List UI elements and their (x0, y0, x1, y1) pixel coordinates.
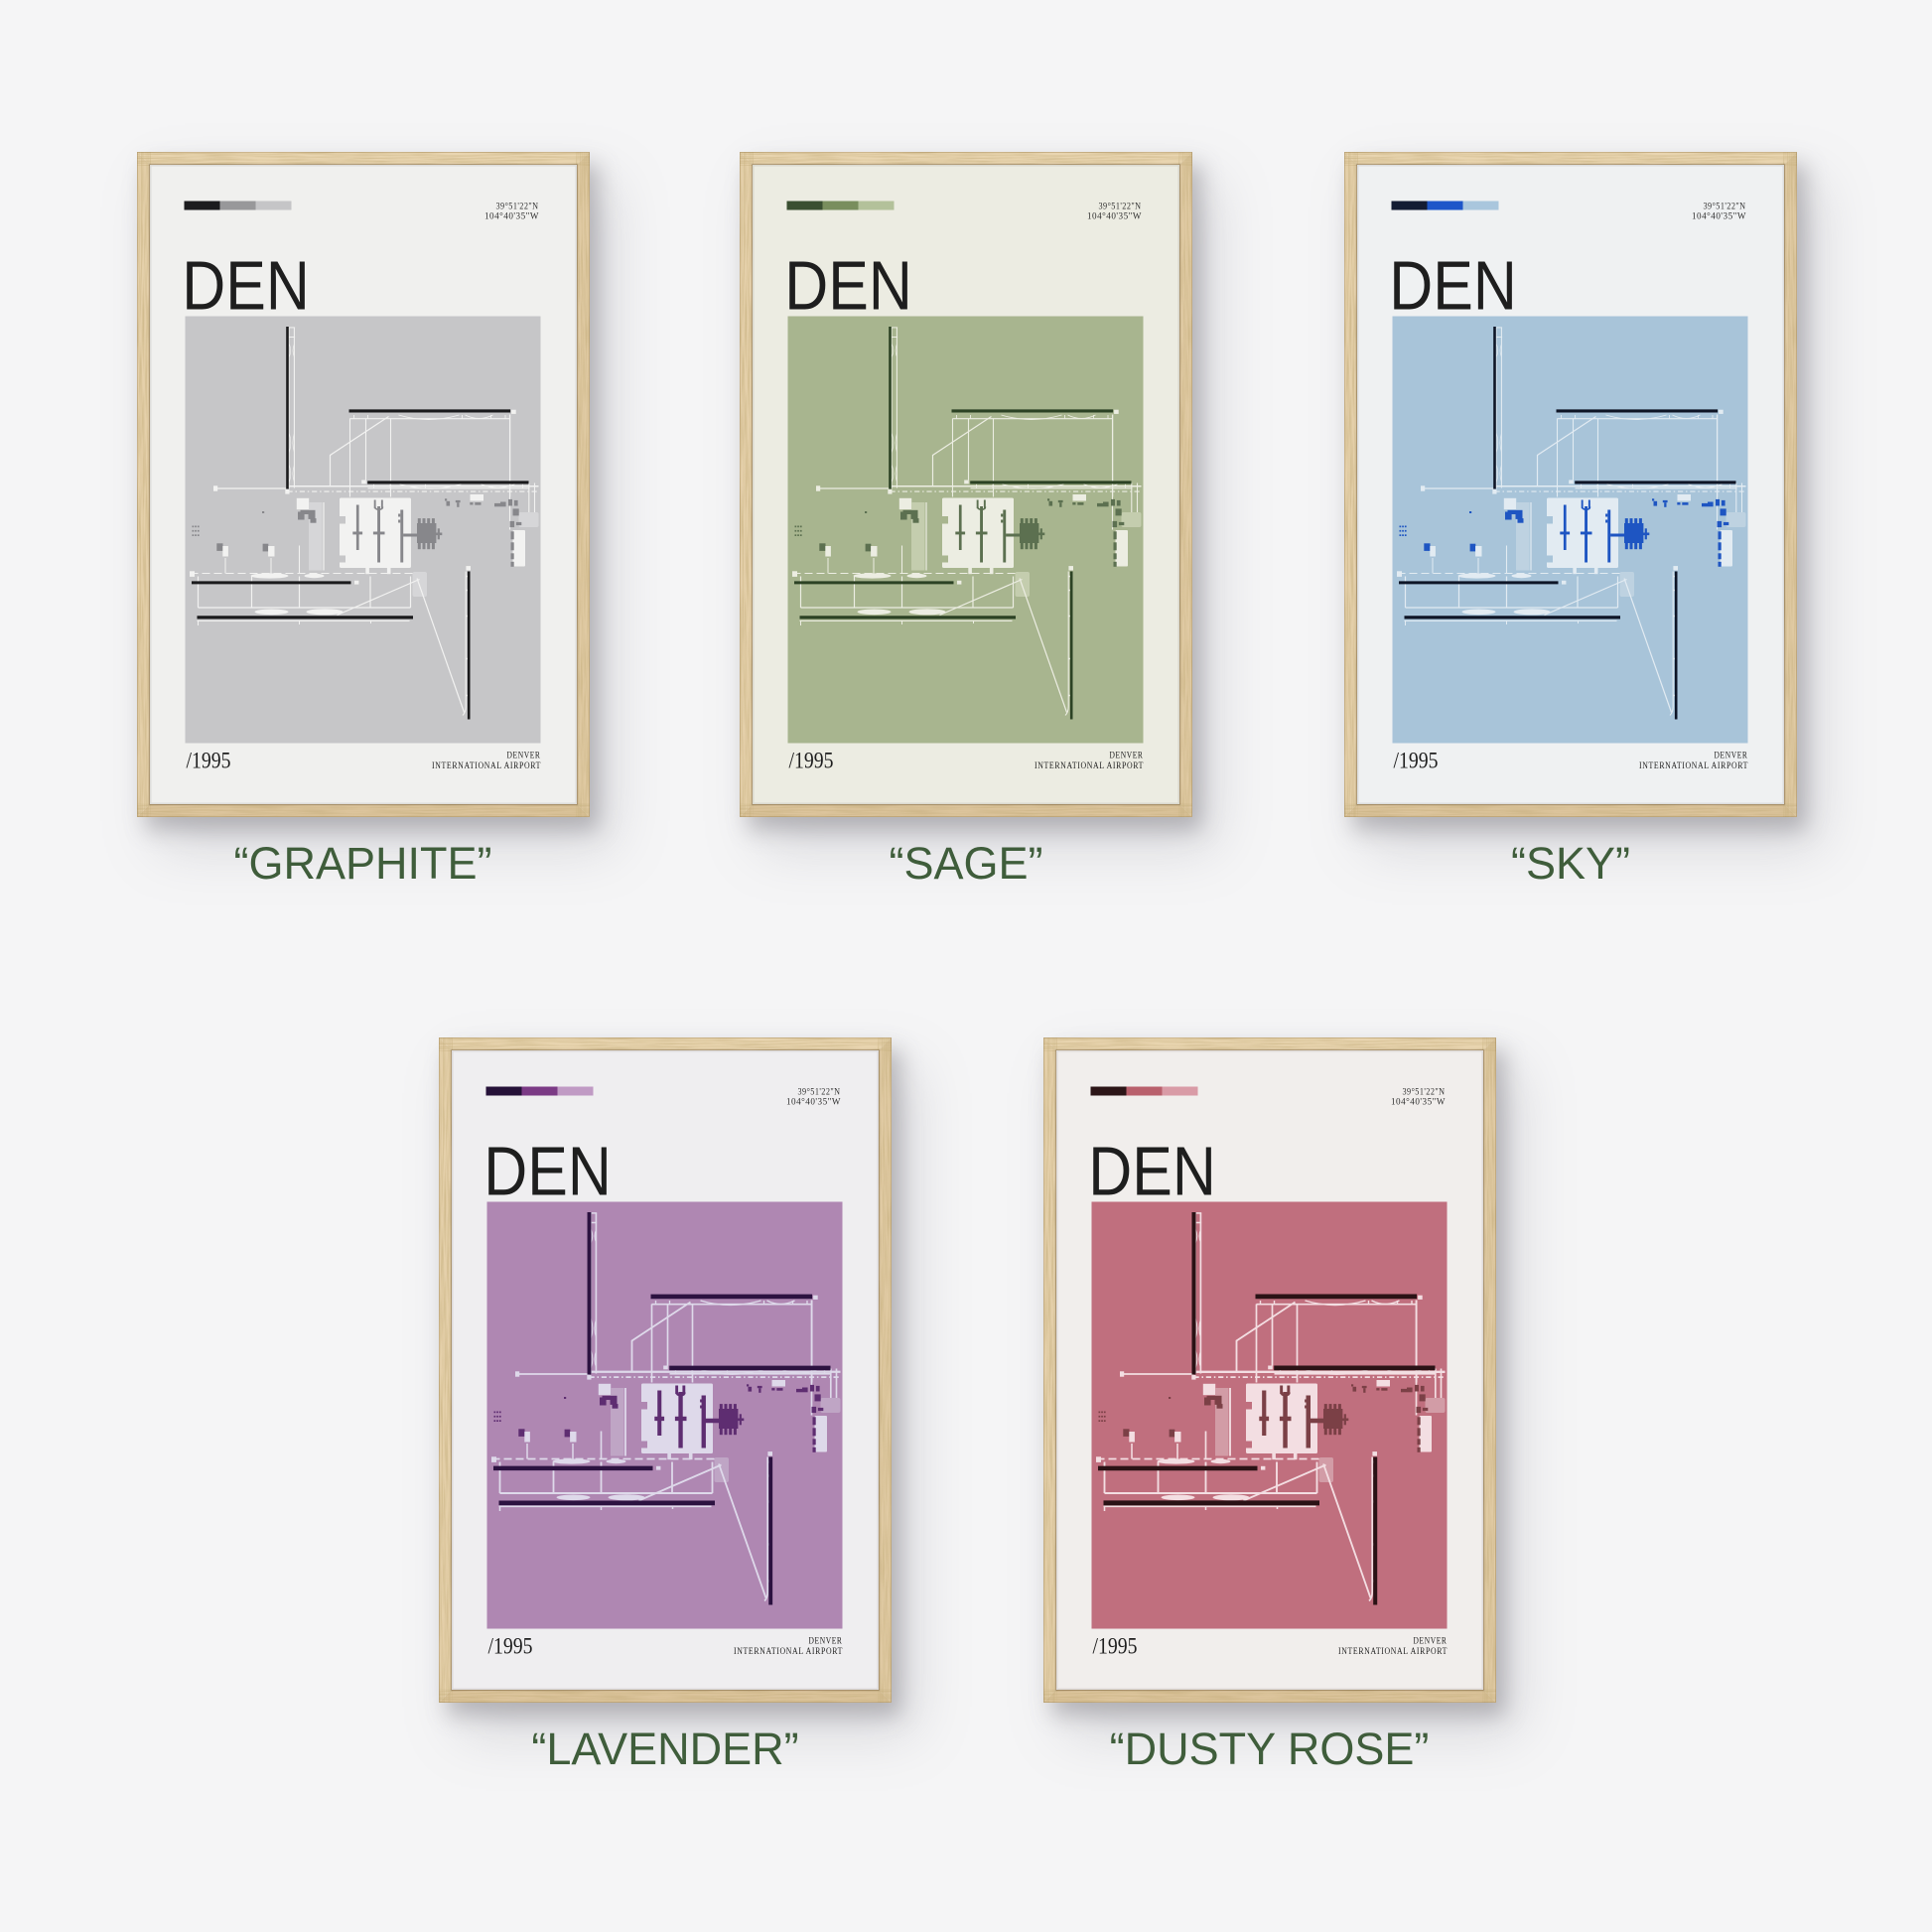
svg-text:DENVER: DENVER (809, 1636, 843, 1647)
svg-text:INTERNATIONAL AIRPORT: INTERNATIONAL AIRPORT (734, 1646, 843, 1657)
svg-text:DENVER: DENVER (1715, 750, 1748, 760)
svg-text:DEN: DEN (1389, 246, 1517, 324)
svg-text:DENVER: DENVER (506, 750, 540, 760)
svg-text:104°40'35"W: 104°40'35"W (1391, 1096, 1446, 1106)
svg-text:DEN: DEN (784, 246, 912, 324)
svg-text:39°51'22"N: 39°51'22"N (798, 1087, 841, 1097)
svg-text:104°40'35"W: 104°40'35"W (1087, 210, 1142, 220)
svg-text:DENVER: DENVER (1413, 1636, 1447, 1647)
svg-text:DEN: DEN (483, 1133, 612, 1210)
svg-text:39°51'22"N: 39°51'22"N (1099, 201, 1142, 210)
svg-text:INTERNATIONAL AIRPORT: INTERNATIONAL AIRPORT (1035, 760, 1144, 771)
svg-text:39°51'22"N: 39°51'22"N (1402, 1087, 1445, 1097)
svg-text:/1995: /1995 (1394, 748, 1439, 772)
svg-text:INTERNATIONAL AIRPORT: INTERNATIONAL AIRPORT (432, 760, 541, 771)
svg-text:DEN: DEN (182, 246, 309, 324)
svg-text:/1995: /1995 (789, 748, 834, 772)
svg-text:104°40'35"W: 104°40'35"W (484, 210, 539, 220)
svg-text:39°51'22"N: 39°51'22"N (495, 201, 538, 210)
svg-text:DEN: DEN (1088, 1133, 1216, 1210)
svg-text:INTERNATIONAL AIRPORT: INTERNATIONAL AIRPORT (1338, 1646, 1448, 1657)
svg-text:/1995: /1995 (488, 1634, 533, 1659)
svg-text:104°40'35"W: 104°40'35"W (1692, 210, 1746, 220)
svg-text:39°51'22"N: 39°51'22"N (1704, 201, 1746, 210)
svg-text:/1995: /1995 (186, 748, 230, 772)
svg-text:DENVER: DENVER (1110, 750, 1144, 760)
svg-text:/1995: /1995 (1092, 1634, 1137, 1659)
svg-text:104°40'35"W: 104°40'35"W (786, 1096, 841, 1106)
svg-text:INTERNATIONAL AIRPORT: INTERNATIONAL AIRPORT (1639, 760, 1748, 771)
